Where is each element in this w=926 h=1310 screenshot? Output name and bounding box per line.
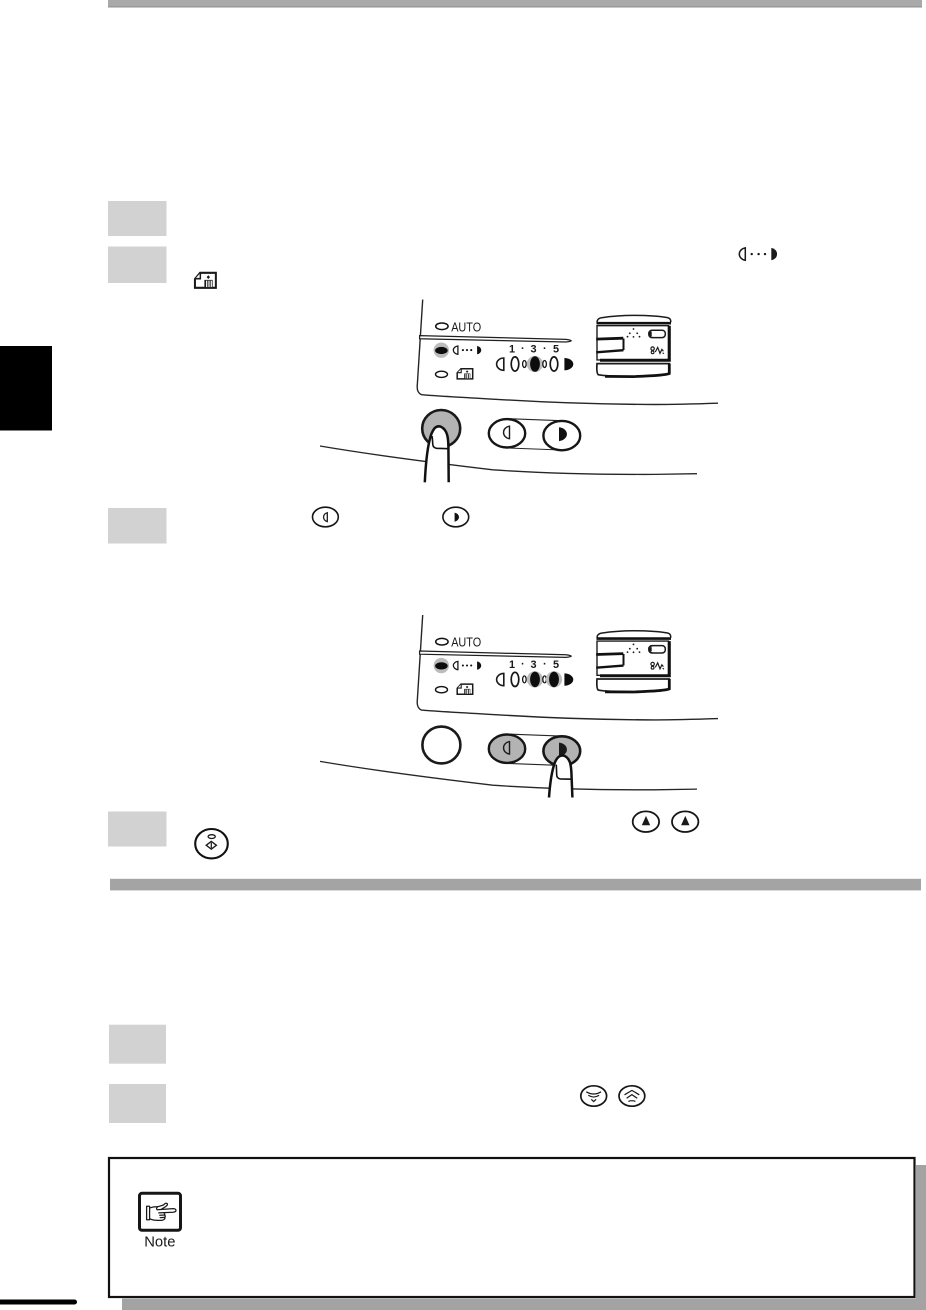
svg-text:Note: Note bbox=[144, 1235, 175, 1251]
